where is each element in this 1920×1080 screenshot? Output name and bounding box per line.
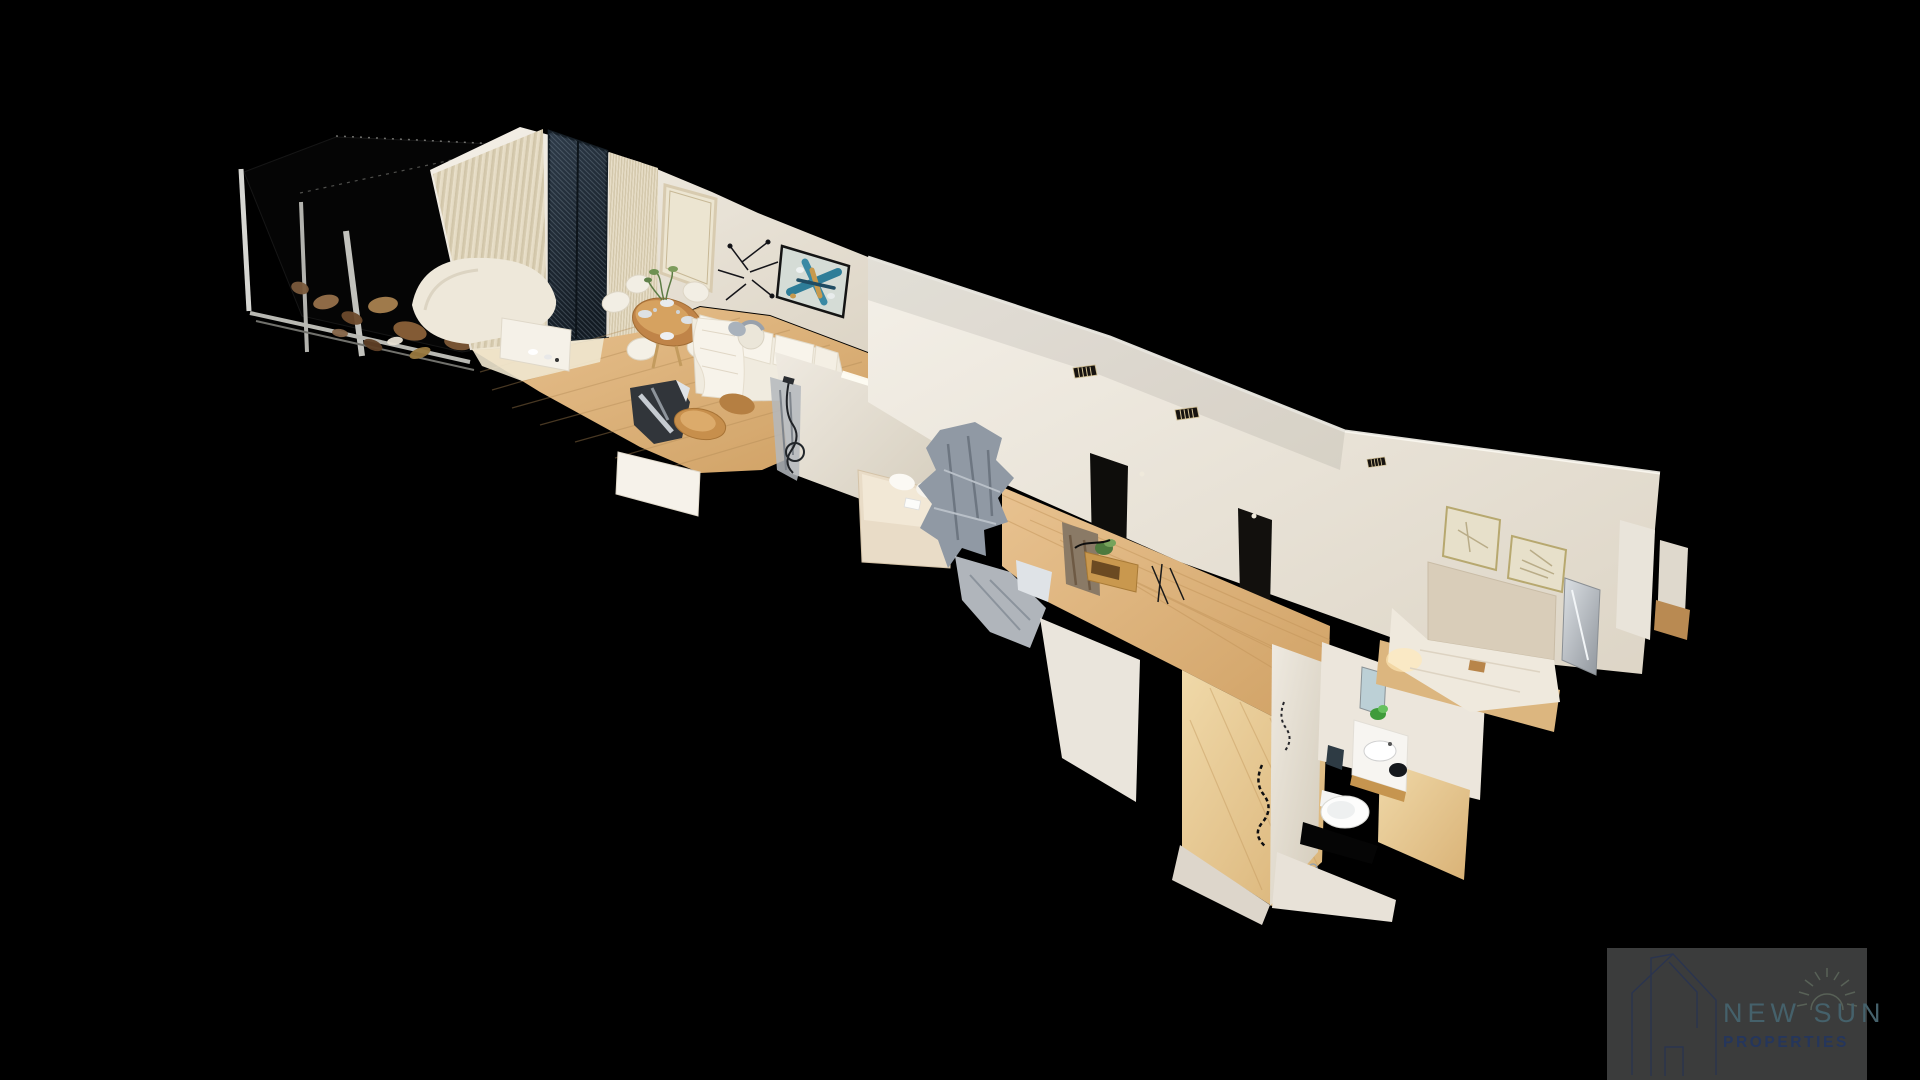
watermark: NEW SUN PROPERTIES xyxy=(1607,948,1867,1080)
plant-leaves xyxy=(649,269,659,275)
dark-bag-artifact xyxy=(1389,763,1407,777)
sideboard-object xyxy=(544,355,552,360)
bathroom-plant-leaves xyxy=(1378,705,1388,713)
faucet xyxy=(1388,742,1392,746)
sideboard-object xyxy=(528,349,538,355)
tour-viewport[interactable]: NEW SUN PROPERTIES xyxy=(0,0,1920,1080)
lamp-glow xyxy=(1386,648,1422,672)
plate xyxy=(660,332,674,340)
dollhouse-3d-view[interactable] xyxy=(0,0,1920,1080)
brand-name: NEW SUN xyxy=(1723,998,1886,1029)
plant-leaves xyxy=(668,266,678,272)
wall-sconce xyxy=(1252,514,1257,519)
toilet-seat xyxy=(1327,801,1355,819)
brand-subtitle: PROPERTIES xyxy=(1723,1034,1849,1052)
plate xyxy=(660,299,674,307)
glass xyxy=(676,310,680,314)
closet-fragment xyxy=(1616,520,1655,640)
plate xyxy=(638,310,652,318)
house-outline-icon xyxy=(1632,954,1716,1076)
sideboard-object xyxy=(555,358,559,362)
plant-leaves xyxy=(644,278,652,283)
wall-sconce xyxy=(1140,472,1145,477)
glass xyxy=(653,308,657,312)
